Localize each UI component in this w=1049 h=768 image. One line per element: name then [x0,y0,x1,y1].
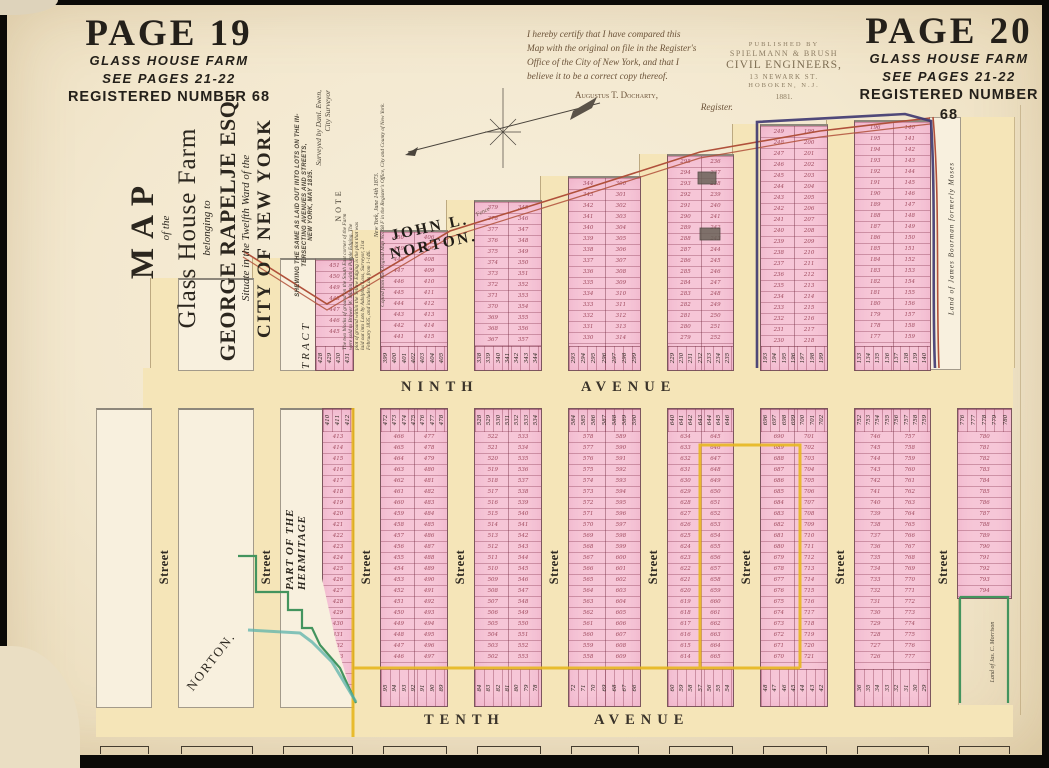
lot-number: 335 [583,280,594,286]
lot-number: 441 [394,334,405,340]
lot-number: 784 [979,478,990,484]
lot-number: 455 [394,555,405,561]
lot-number: 232 [698,353,704,364]
lot-number: 310 [616,291,627,297]
lot-number: 478 [439,415,445,426]
lot-number: 529 [486,415,492,426]
lot-number: 664 [710,643,721,649]
lot-number: 465 [394,445,405,451]
lot-number: 189 [870,202,881,208]
lot-number: 152 [905,257,916,263]
lot-number: 551 [518,632,529,638]
hermitage-label: PART OF THE HERMITAGE [287,430,305,590]
lot-number: 713 [804,566,815,572]
lot-number: 372 [488,282,499,288]
lot-number: 204 [804,184,815,190]
lot-number: 517 [488,489,499,495]
street-label: Street [157,537,171,597]
lot-number: 709 [804,522,815,528]
lot-number: 84 [477,684,483,691]
lot-number: 179 [870,312,881,318]
lot-number: 411 [335,415,341,426]
lot-number: 149 [905,224,916,230]
tenth-avenue-band: TENTH AVENUE [96,705,1013,737]
lot-number: 697 [772,415,778,426]
lot-number: 641 [679,415,685,426]
street-label: Street [833,537,847,597]
lot-number: 83 [486,684,492,691]
lot-number: 240 [774,228,785,234]
lot-number: 651 [710,500,721,506]
lot-number: 587 [602,415,608,426]
ninth-avenue-band: NINTH AVENUE [143,368,1013,408]
lot-number: 446 [394,654,405,660]
lot-number: 237 [774,261,785,267]
lot-number: 495 [424,632,435,638]
lot-number: 347 [518,227,529,233]
lot-number: 572 [583,500,594,506]
lot-number: 339 [583,236,594,242]
lot-number: 542 [518,533,529,539]
lot-number: 191 [870,180,881,186]
lot-number: 777 [905,654,916,660]
lot-number: 298 [622,353,628,364]
lot-number: 95 [383,684,389,691]
title-belonging: belonging to [201,200,215,255]
lot-number: 545 [518,566,529,572]
lot-number: 549 [518,610,529,616]
lot-number: 683 [774,511,785,517]
lot-number: 553 [518,654,529,660]
partial-block-outline [383,746,447,754]
lot-number: 217 [804,327,815,333]
page20-title: PAGE 20 [850,13,1048,50]
lot-number: 743 [870,467,881,473]
lot-number: 779 [992,415,998,426]
lot-number: 428 [333,599,344,605]
paper-fold-line [1020,105,1021,715]
note-line: February 1835, and includes Lots from 1-… [367,250,373,350]
lot-number: 400 [392,353,398,364]
lot-number: 431 [345,353,351,364]
lot-number: 534 [533,415,539,426]
title-situate: Situate in the Twelfth Ward of the [240,155,254,301]
block-center-line [794,409,795,706]
lot-number: 447 [394,643,405,649]
lot-number: 338 [583,247,594,253]
lot-number: 341 [583,214,594,220]
lot-number: 608 [616,643,627,649]
lot-number: 184 [870,257,881,263]
lot-number: 58 [688,684,694,691]
lot-number: 646 [725,415,731,426]
ninth-avenue-label-2: AVENUE [581,379,676,396]
lot-number: 199 [819,353,825,364]
lot-number: 629 [680,489,691,495]
map-sheet: NINTH AVENUE TENTH AVENUE [0,0,1049,768]
lot-number: 287 [680,247,691,253]
lot-number: 425 [333,566,344,572]
lot-number: 35 [866,684,872,691]
lot-number: 449 [394,621,405,627]
lot-block: 4664654644634624614604594584574564554544… [380,408,448,707]
lot-number: 752 [857,415,863,426]
lot-number: 516 [488,500,499,506]
lot-number: 627 [680,511,691,517]
lot-number: 705 [804,478,815,484]
lot-number: 621 [680,577,691,583]
lot-number: 520 [488,456,499,462]
lot-number: 482 [424,489,435,495]
lot-number: 408 [424,257,435,263]
lot-number: 754 [875,415,881,426]
lot-number: 353 [518,293,529,299]
lot-number: 29 [922,684,928,691]
block-center-line [605,409,606,706]
lot-number: 507 [488,599,499,605]
lot-number: 208 [804,228,815,234]
publisher-city: HOBOKEN, N.J. [720,82,848,89]
title-owner: GEORGE RAPELJE ESQ. [215,95,240,362]
lot-number: 624 [680,544,691,550]
lot-number: 595 [616,500,627,506]
lot-number: 740 [870,500,881,506]
lot-number: 792 [979,566,990,572]
lot-number: 182 [870,279,881,285]
lot-number: 146 [905,191,916,197]
lot-number: 594 [616,489,627,495]
lot-number: 736 [870,544,881,550]
lot-number: 344 [533,353,539,364]
lot-number: 447 [394,268,405,274]
lot-number: 793 [979,577,990,583]
lot-number: 547 [518,588,529,594]
lot-number: 457 [394,533,405,539]
lot-number: 681 [774,533,785,539]
subtitle-line: TERSECTING AVENUES AND STREETS, [302,143,309,266]
lot-number: 513 [488,533,499,539]
lot-number: 286 [680,258,691,264]
lot-number: 730 [870,610,881,616]
lot-number: 674 [774,610,785,616]
lot-number: 180 [870,301,881,307]
lot-number: 534 [518,445,529,451]
lot-number: 502 [488,654,499,660]
lot-number: 375 [488,249,499,255]
lot-number: 619 [680,599,691,605]
lot-number: 734 [870,566,881,572]
lot-number: 773 [905,610,916,616]
lot-number: 330 [583,335,594,341]
lot-number: 139 [913,353,919,364]
lot-number: 768 [905,555,916,561]
lot-number: 68 [612,684,618,691]
lot-number: 680 [774,544,785,550]
lot-number: 631 [680,467,691,473]
lot-number: 48 [763,684,769,691]
lot-number: 660 [710,599,721,605]
lot-block: 7807817827837847857867877887897907917927… [957,408,1012,599]
lot-number: 515 [488,511,499,517]
lot-number: 592 [616,467,627,473]
lot-number: 607 [616,632,627,638]
lot-number: 178 [870,323,881,329]
lot-number: 701 [804,434,815,440]
lot-number: 233 [707,353,713,364]
lot-number: 412 [424,301,435,307]
lot-number: 788 [979,522,990,528]
lot-number: 696 [763,415,769,426]
street-label: Street [259,537,273,597]
boorman-land-label: Land of James Boorman formerly Moses [944,129,959,349]
lot-number: 615 [680,643,691,649]
lot-number: 231 [774,327,785,333]
lot-number: 355 [518,315,529,321]
lot-number: 183 [870,268,881,274]
lot-number: 247 [774,151,785,157]
lot-number: 623 [680,555,691,561]
lot-number: 765 [905,522,916,528]
lot-number: 718 [804,621,815,627]
lot-number: 543 [518,544,529,550]
lot-number: 244 [774,184,785,190]
lot-number: 153 [905,268,916,274]
lot-number: 289 [680,225,691,231]
publisher-address: 13 NEWARK ST. [720,73,848,81]
lot-number: 334 [583,291,594,297]
lot-block: 6906896886876866856846836826816806796786… [760,408,828,707]
lot-number: 299 [632,353,638,364]
lot-number: 185 [870,246,881,252]
lot-number: 665 [710,654,721,660]
lot-number: 155 [905,290,916,296]
lot-number: 685 [774,489,785,495]
lot-number: 794 [979,588,990,594]
lot-number: 78 [533,684,539,691]
lot-number: 72 [571,684,577,691]
lot-number: 54 [725,684,731,691]
lot-number: 237 [710,170,721,176]
page19-heading: PAGE 19 GLASS HOUSE FARM SEE PAGES 21-22… [29,15,309,107]
lot-number: 404 [430,353,436,364]
lot-number: 252 [710,335,721,341]
lot-number: 422 [333,533,344,539]
lot-number: 424 [333,555,344,561]
lot-number: 194 [870,147,881,153]
lot-number: 483 [424,500,435,506]
cert-role: Register. [527,102,755,116]
lot-number: 415 [424,334,435,340]
lot-number: 479 [424,456,435,462]
lot-number: 564 [583,588,594,594]
lot-number: 662 [710,621,721,627]
lot-number: 213 [804,283,815,289]
lot-number: 57 [698,684,704,691]
lot-number: 702 [819,415,825,426]
page19-reg: REGISTERED NUMBER 68 [29,87,309,107]
lot-number: 552 [518,643,529,649]
lot-number: 307 [616,258,627,264]
lot-number: 565 [583,577,594,583]
lot-number: 761 [905,478,916,484]
lot-number: 93 [402,684,408,691]
lot-number: 377 [488,227,499,233]
lot-number: 133 [857,353,863,364]
lot-number: 235 [725,353,731,364]
lot-number: 245 [710,258,721,264]
lot-number: 462 [394,478,405,484]
lot-number: 303 [616,214,627,220]
lot-number: 609 [616,654,627,660]
street-label: Street [453,537,467,597]
lot-number: 758 [913,415,919,426]
lot-number: 454 [394,566,405,572]
lot-number: 248 [710,291,721,297]
lot-number: 536 [518,467,529,473]
lot-number: 650 [710,489,721,495]
lot-number: 755 [885,415,891,426]
lot-number: 648 [710,467,721,473]
lot-number: 445 [394,290,405,296]
lot-number: 291 [680,203,691,209]
lot-number: 672 [774,632,785,638]
lot-number: 753 [866,415,872,426]
lot-number: 756 [894,415,900,426]
lot-number: 331 [583,324,594,330]
partial-block-outline [763,746,827,754]
lot-number: 336 [583,269,594,275]
lot-number: 777 [971,415,977,426]
lot-number: 414 [333,445,344,451]
lot-number: 512 [488,544,499,550]
block-center-line [794,126,795,370]
lot-number: 231 [688,353,694,364]
lot-number: 241 [710,214,721,220]
lot-number: 340 [496,353,502,364]
lot-number: 200 [804,140,815,146]
lot-number: 446 [394,279,405,285]
note-copied: Copied from the Original Map No. 68 F in… [380,103,386,307]
lot-block: 1961951941931921911901891881871861851841… [854,120,931,371]
lot-number: 458 [394,522,405,528]
lot-number: 242 [774,206,785,212]
tenth-avenue-label-1: TENTH [424,712,505,729]
lot-number: 36 [857,684,863,691]
lot-number: 721 [804,654,815,660]
lot-number: 279 [680,335,691,341]
lot-number: 461 [394,489,405,495]
title-farm: Glass House Farm [174,128,202,329]
lot-number: 413 [424,312,435,318]
morrison-land-label: Land of Jas. C. Morrison [987,602,999,702]
block-center-line [508,202,509,370]
lot-number: 494 [424,621,435,627]
lot-number: 304 [616,225,627,231]
partial-block-outline [100,746,149,754]
lot-number: 463 [394,467,405,473]
lot-number: 477 [424,434,435,440]
lot-number: 190 [870,191,881,197]
lot-number: 246 [774,162,785,168]
lot-number: 69 [602,684,608,691]
lot-number: 156 [905,301,916,307]
surveyor-title: City Surveyor [324,60,333,131]
lot-number: 444 [394,301,405,307]
lot-number: 586 [591,415,597,426]
subtitle-line: NEW YORK, MAY 1835. [308,169,315,240]
lot-number: 633 [680,445,691,451]
lot-number: 701 [810,415,816,426]
lot-number: 233 [774,305,785,311]
lot-number: 343 [524,353,530,364]
lot-number: 771 [905,588,916,594]
lot-number: 412 [345,415,351,426]
lot-number: 676 [774,588,785,594]
lot-number: 522 [488,434,499,440]
lot-number: 301 [616,192,627,198]
lot-number: 203 [804,173,815,179]
lot-number: 603 [616,588,627,594]
page19-farm: GLASS HOUSE FARM [29,52,309,70]
lot-number: 338 [477,353,483,364]
lot-number: 451 [394,599,405,605]
lot-number: 352 [518,282,529,288]
lot-number: 546 [518,577,529,583]
lot-number: 466 [394,434,405,440]
lot-number: 744 [870,456,881,462]
lot-number: 628 [680,500,691,506]
lot-number: 654 [710,533,721,539]
lot-number: 644 [707,415,713,426]
lot-number: 485 [424,522,435,528]
lot-number: 511 [488,555,499,561]
lot-number: 656 [710,555,721,561]
lot-number: 135 [875,353,881,364]
lot-number: 207 [804,217,815,223]
lot-number: 675 [774,599,785,605]
lot-number: 151 [905,246,916,252]
lot-number: 426 [333,577,344,583]
lot-number: 589 [622,415,628,426]
lot-number: 678 [774,566,785,572]
lot-number: 249 [710,302,721,308]
lot-number: 357 [518,337,529,343]
lot-number: 772 [905,599,916,605]
lot-number: 348 [518,238,529,244]
lot-number: 630 [680,478,691,484]
lot-number: 591 [616,456,627,462]
street-band-top [639,154,669,368]
lot-number: 537 [518,478,529,484]
lot-number: 688 [774,456,785,462]
lot-number: 143 [905,158,916,164]
publisher-badge: PUBLISHED BY SPIELMANN & BRUSH CIVIL ENG… [720,41,848,101]
lot-number: 82 [496,684,502,691]
lot-number: 585 [581,415,587,426]
lot-number: 295 [591,353,597,364]
block-center-line [508,409,509,706]
lot-number: 475 [411,415,417,426]
block-center-line [414,409,415,706]
open-land-block [96,408,152,708]
lot-number: 45 [791,684,797,691]
lot-number: 351 [518,271,529,277]
lot-number: 186 [870,235,881,241]
lot-number: 371 [488,293,499,299]
lot-number: 246 [710,269,721,275]
lot-number: 600 [616,555,627,561]
lot-number: 140 [922,353,928,364]
